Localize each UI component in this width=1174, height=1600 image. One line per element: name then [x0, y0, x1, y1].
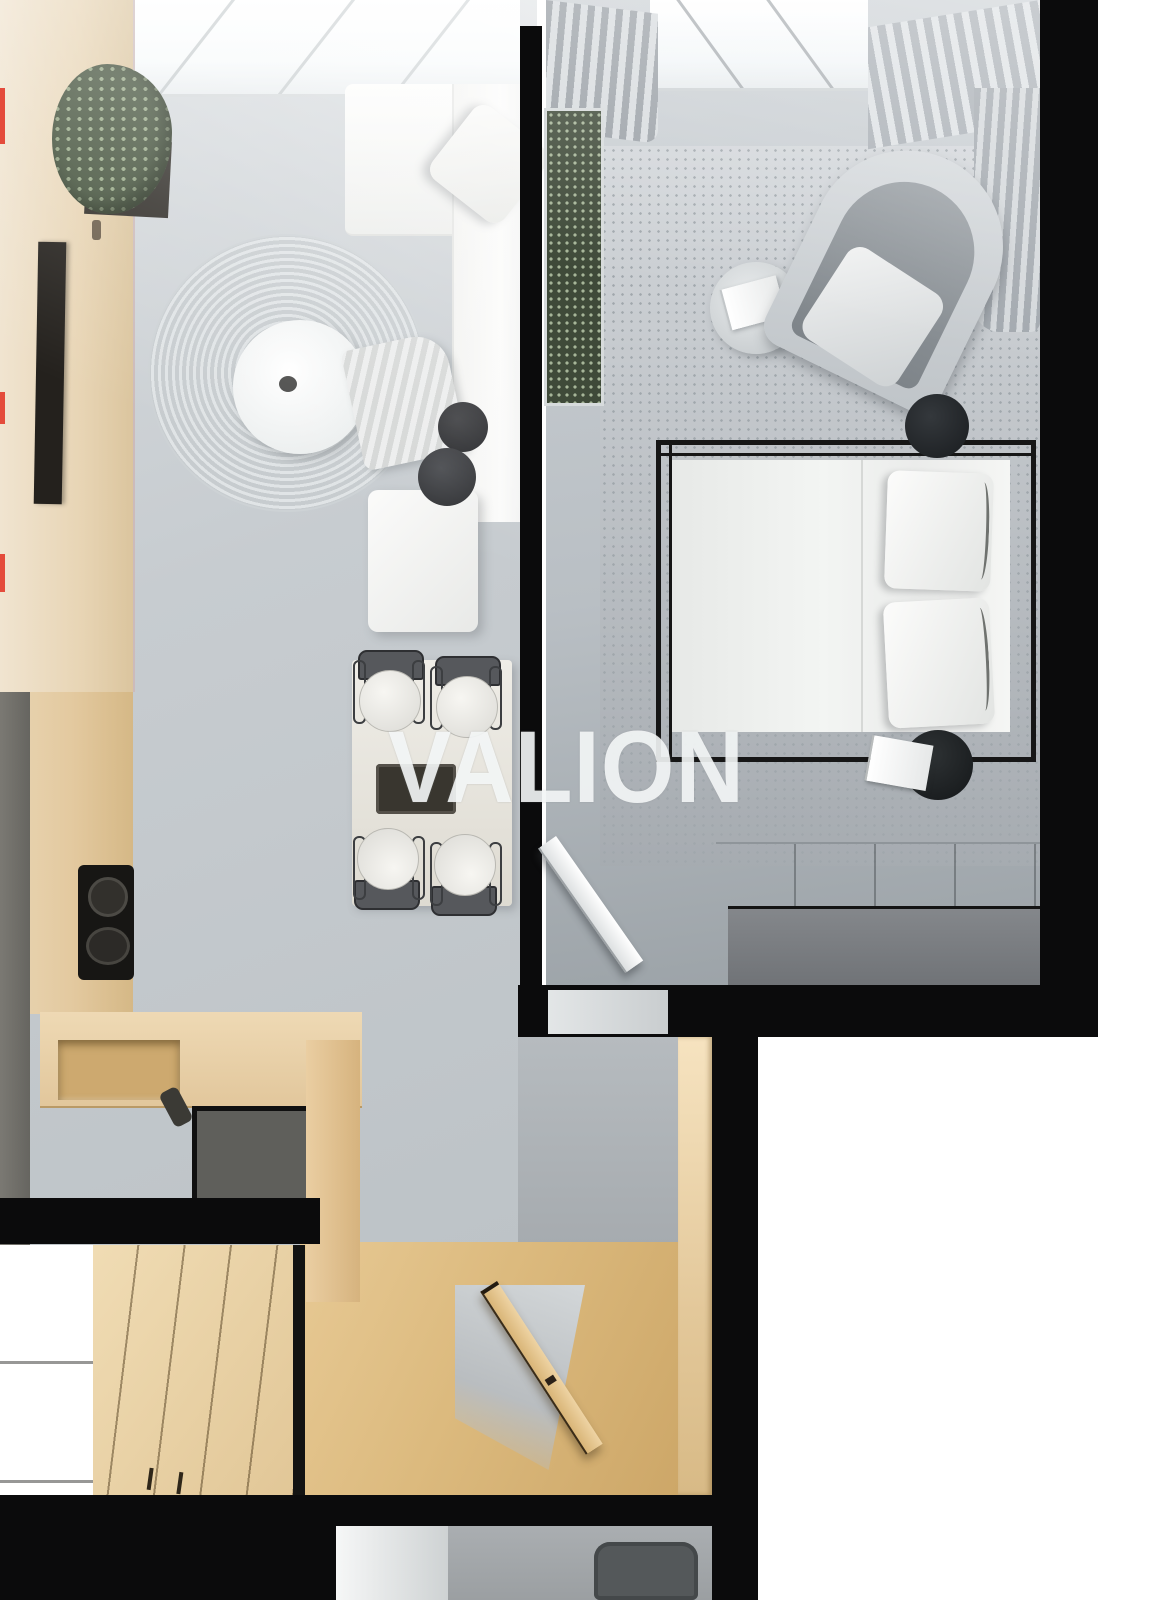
- bedroom-window: [650, 0, 868, 91]
- dining-chair: [353, 650, 425, 750]
- wall-living-bedroom: [520, 26, 542, 988]
- dining-chair: [430, 816, 502, 916]
- black-side-table: [418, 448, 476, 506]
- wardrobe-partition: [293, 1245, 305, 1533]
- wardrobe-base-shadow: [0, 1588, 93, 1600]
- sideboard-handle: [92, 220, 101, 240]
- chair-seat: [359, 670, 421, 732]
- bed-pillow: [883, 597, 995, 728]
- toilet: [594, 1542, 698, 1600]
- red-edge-artifact: [0, 88, 5, 144]
- floor-plan-render: VALION: [0, 0, 1174, 1600]
- living-room-window: [125, 0, 520, 97]
- wardrobe-base-shadow: [93, 1585, 298, 1600]
- chair-seat: [434, 834, 496, 896]
- counter-wood-column: [306, 1040, 360, 1302]
- storage-bench-front: [728, 906, 1040, 993]
- bedroom-door-threshold: [548, 990, 668, 1034]
- television: [34, 242, 67, 504]
- red-edge-artifact: [0, 392, 5, 424]
- window-frame-line: [155, 0, 237, 97]
- chair-seat: [357, 828, 419, 890]
- window-frame-line: [275, 0, 357, 97]
- window-frame-line: [390, 0, 472, 97]
- round-nightstand: [905, 394, 969, 458]
- window-frame-line: [765, 0, 838, 91]
- serving-tray: [376, 764, 456, 814]
- wardrobe-handles: [147, 1468, 184, 1495]
- chair-seat: [436, 676, 498, 738]
- bed-pillow: [884, 470, 994, 592]
- white-ottoman: [368, 490, 478, 632]
- red-edge-artifact: [0, 554, 5, 592]
- corridor-floor: [518, 1037, 678, 1245]
- dining-chair: [353, 810, 425, 910]
- hallway-wood-cabinet: [678, 1037, 712, 1495]
- wall-right-exterior: [1040, 0, 1098, 1037]
- cabinet-gray-side-panel: [0, 692, 30, 1245]
- black-side-table: [438, 402, 488, 452]
- sink-recess: [58, 1040, 180, 1100]
- window-frame-line: [675, 0, 748, 91]
- vertical-wall-planter: [544, 108, 604, 406]
- cooktop: [78, 865, 134, 980]
- kitchen-partition-wall: [0, 1198, 320, 1244]
- counter-gray-front: [192, 1106, 316, 1212]
- dining-chair: [430, 656, 502, 756]
- storage-bench-top: [716, 842, 1040, 908]
- bathroom-door-panel: [336, 1526, 448, 1600]
